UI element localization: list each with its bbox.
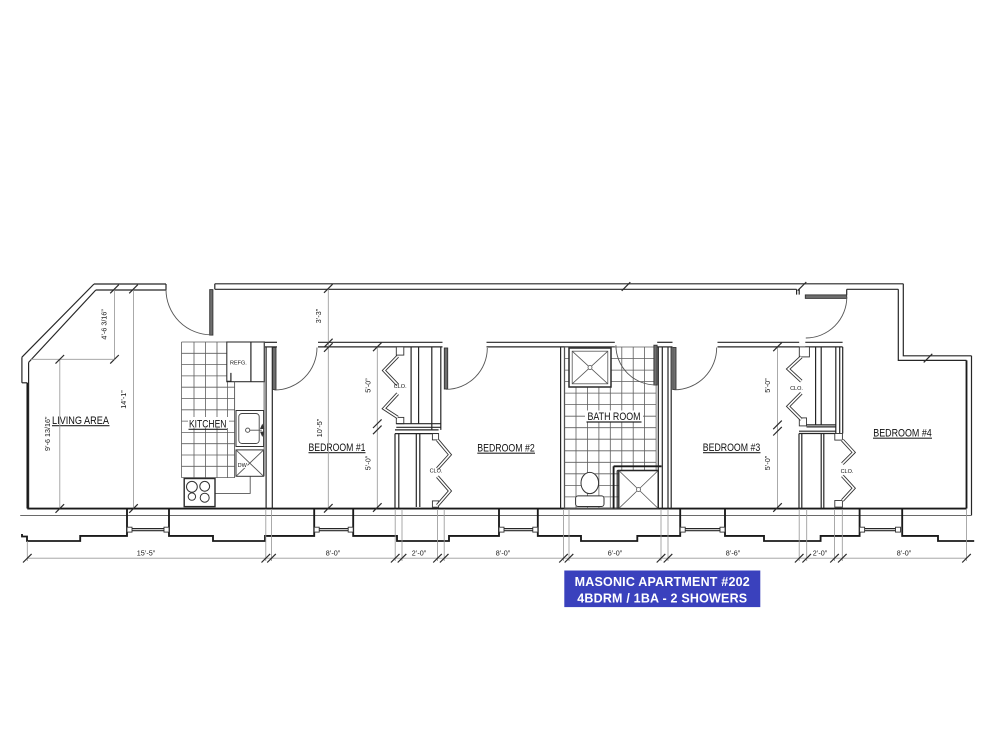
svg-text:BATH ROOM: BATH ROOM	[588, 411, 641, 423]
svg-text:CLO.: CLO.	[394, 384, 407, 390]
svg-text:BEDROOM #2: BEDROOM #2	[477, 442, 535, 454]
svg-text:REFG.: REFG.	[230, 361, 247, 367]
svg-text:5’-0”: 5’-0”	[364, 455, 373, 470]
svg-text:2’-0”: 2’-0”	[813, 548, 828, 557]
svg-text:MASONIC APARTMENT #202: MASONIC APARTMENT #202	[575, 575, 750, 589]
svg-text:BEDROOM #3: BEDROOM #3	[703, 442, 761, 454]
svg-text:8’-0”: 8’-0”	[496, 548, 511, 557]
svg-text:LIVING AREA: LIVING AREA	[52, 415, 110, 427]
svg-text:14’-1”: 14’-1”	[119, 390, 128, 409]
svg-text:3’-3”: 3’-3”	[314, 308, 323, 323]
svg-text:4BDRM / 1BA - 2 SHOWERS: 4BDRM / 1BA - 2 SHOWERS	[577, 592, 747, 606]
svg-text:8’-0”: 8’-0”	[897, 548, 912, 557]
svg-text:15’-5”: 15’-5”	[137, 548, 156, 557]
svg-text:8’-6”: 8’-6”	[726, 548, 741, 557]
svg-text:5’-0”: 5’-0”	[364, 378, 373, 393]
svg-text:5’-0”: 5’-0”	[763, 378, 772, 393]
svg-text:CLO.: CLO.	[430, 469, 443, 475]
svg-text:6’-0”: 6’-0”	[608, 548, 623, 557]
svg-text:5’-0”: 5’-0”	[763, 455, 772, 470]
svg-text:CLO.: CLO.	[790, 386, 803, 392]
svg-text:DW: DW	[238, 463, 248, 469]
svg-text:8’-0”: 8’-0”	[326, 548, 341, 557]
svg-text:2’-0”: 2’-0”	[412, 548, 427, 557]
svg-text:BEDROOM #1: BEDROOM #1	[309, 442, 366, 454]
svg-text:CLO.: CLO.	[841, 469, 854, 475]
svg-text:BEDROOM #4: BEDROOM #4	[873, 427, 932, 439]
svg-text:10’-5”: 10’-5”	[315, 418, 324, 437]
svg-text:4’-6 3/16”: 4’-6 3/16”	[99, 309, 108, 340]
svg-text:9’-6 13/16”: 9’-6 13/16”	[43, 416, 52, 451]
